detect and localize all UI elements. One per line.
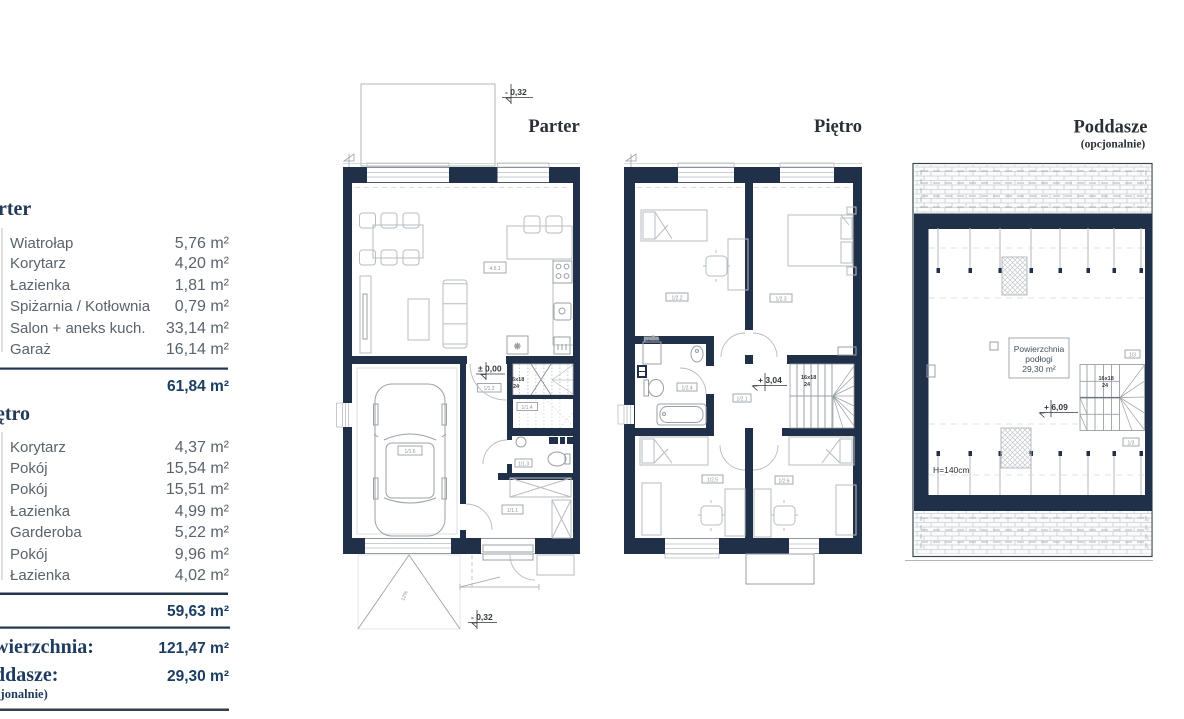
- svg-text:Łazienka: Łazienka: [10, 567, 71, 584]
- svg-text:Garaż: Garaż: [10, 341, 51, 358]
- svg-text:ddasze:: ddasze:: [0, 664, 58, 686]
- svg-text:Parter: Parter: [528, 117, 579, 137]
- svg-text:24: 24: [1102, 383, 1109, 389]
- svg-text:Łazienka: Łazienka: [10, 503, 71, 520]
- svg-text:1/1.2: 1/1.2: [483, 386, 494, 392]
- svg-text:33,14 m²: 33,14 m²: [166, 320, 230, 337]
- svg-text:± 0,00: ± 0,00: [478, 364, 502, 374]
- svg-text:61,84 m²: 61,84 m²: [167, 378, 229, 395]
- svg-text:9,96 m²: 9,96 m²: [175, 546, 230, 563]
- svg-text:Powierzchnia: Powierzchnia: [1014, 344, 1065, 354]
- svg-text:1/3: 1/3: [1128, 441, 1135, 447]
- svg-text:Pokój: Pokój: [10, 546, 48, 563]
- svg-text:+ 6,09: + 6,09: [1044, 402, 1068, 412]
- svg-text:ętro: ętro: [0, 403, 30, 425]
- svg-text:Spiżarnia / Kotłownia: Spiżarnia / Kotłownia: [10, 298, 151, 315]
- svg-text:4,02 m²: 4,02 m²: [175, 567, 230, 584]
- svg-text:59,63 m²: 59,63 m²: [167, 603, 229, 620]
- svg-text:24: 24: [513, 384, 520, 390]
- svg-text:29,30 m²: 29,30 m²: [1022, 364, 1056, 374]
- svg-text:Poddasze: Poddasze: [1074, 118, 1148, 138]
- svg-text:1/2.6: 1/2.6: [778, 479, 789, 485]
- svg-text:16,14 m²: 16,14 m²: [166, 341, 230, 358]
- svg-text:1/1.4: 1/1.4: [521, 405, 532, 411]
- svg-text:5,22 m²: 5,22 m²: [175, 524, 230, 541]
- svg-text:cjonalnie): cjonalnie): [0, 687, 48, 701]
- svg-text:Korytarz: Korytarz: [10, 255, 66, 272]
- svg-text:✳: ✳: [514, 342, 521, 351]
- svg-text:(opcjonalnie): (opcjonalnie): [1081, 139, 1146, 151]
- svg-text:16x18: 16x18: [509, 377, 524, 383]
- svg-text:1/2.1: 1/2.1: [736, 397, 747, 403]
- svg-text:15,51 m²: 15,51 m²: [166, 481, 230, 498]
- svg-text:1,81 m²: 1,81 m²: [175, 277, 230, 294]
- svg-text:1/2.4: 1/2.4: [681, 386, 692, 392]
- svg-text:- 0,32: - 0,32: [505, 87, 527, 97]
- svg-text:1/1.6: 1/1.6: [404, 449, 415, 455]
- svg-text:Piętro: Piętro: [814, 117, 862, 137]
- svg-text:Pokój: Pokój: [10, 460, 48, 477]
- svg-text:rter: rter: [0, 198, 31, 220]
- svg-text:Garderoba: Garderoba: [10, 524, 82, 541]
- svg-text:5,76 m²: 5,76 m²: [175, 235, 230, 252]
- svg-text:4,37 m²: 4,37 m²: [175, 439, 230, 456]
- svg-text:1/3: 1/3: [1129, 353, 1136, 359]
- svg-text:Łazienka: Łazienka: [10, 277, 71, 294]
- svg-text:- 0,32: - 0,32: [471, 612, 493, 622]
- svg-text:1/2.2: 1/2.2: [671, 296, 682, 302]
- svg-text:1/1.1: 1/1.1: [507, 508, 518, 514]
- svg-text:4.5.1: 4.5.1: [489, 266, 500, 272]
- svg-text:1/1.3: 1/1.3: [518, 462, 529, 468]
- svg-text:4,20 m²: 4,20 m²: [175, 255, 230, 272]
- svg-text:12%: 12%: [400, 590, 410, 602]
- svg-text:Korytarz: Korytarz: [10, 439, 66, 456]
- svg-text:1/2.5: 1/2.5: [707, 478, 718, 484]
- svg-text:H=140cm: H=140cm: [933, 465, 970, 475]
- svg-text:121,47 m²: 121,47 m²: [158, 640, 229, 657]
- svg-text:+ 3,04: + 3,04: [758, 375, 782, 385]
- svg-text:24: 24: [804, 382, 811, 388]
- svg-text:0,79 m²: 0,79 m²: [175, 298, 230, 315]
- svg-text:16x18: 16x18: [801, 375, 816, 381]
- svg-text:1/2.3: 1/2.3: [775, 297, 786, 303]
- svg-text:pralka: pralka: [644, 336, 659, 342]
- svg-text:16x18: 16x18: [1099, 376, 1114, 382]
- svg-text:29,30 m²: 29,30 m²: [167, 668, 229, 685]
- svg-text:Salon + aneks kuch.: Salon + aneks kuch.: [10, 320, 146, 337]
- svg-text:15,54 m²: 15,54 m²: [166, 460, 230, 477]
- svg-text:4,99 m²: 4,99 m²: [175, 503, 230, 520]
- svg-text:wierzchnia:: wierzchnia:: [0, 636, 94, 658]
- svg-text:podłogi: podłogi: [1025, 354, 1053, 364]
- svg-text:Wiatrołap: Wiatrołap: [10, 235, 73, 252]
- svg-text:Pokój: Pokój: [10, 481, 48, 498]
